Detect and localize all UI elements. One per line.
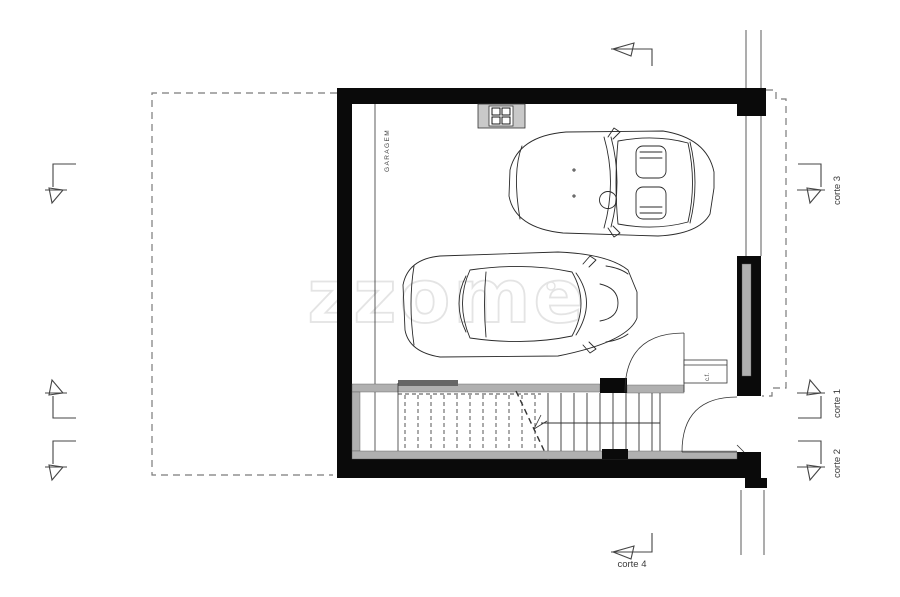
stair-mid-landing-line bbox=[541, 393, 660, 453]
divider-band-left bbox=[352, 384, 600, 392]
car-convertible-steering-wheel bbox=[600, 192, 617, 209]
section-label-corte-3: corte 3 bbox=[832, 176, 843, 205]
car-convertible-mirror-top bbox=[608, 128, 620, 139]
section-arrow-corte-3 bbox=[797, 164, 825, 203]
section-marker-corte-4: corte 4 bbox=[611, 533, 652, 570]
wall-bottom-step bbox=[745, 478, 767, 488]
room-label-garagem: GARAGEM bbox=[384, 129, 391, 172]
closet-label: c.f. bbox=[705, 373, 711, 381]
vent-flue-1 bbox=[492, 108, 500, 115]
wall-right-door-head bbox=[737, 382, 761, 396]
floor-plan-canvas: zzome GARAGEM bbox=[0, 0, 900, 597]
wall-right-pier bbox=[737, 88, 766, 116]
stair-cut-line bbox=[516, 391, 549, 461]
stair-treads-dashed bbox=[405, 395, 535, 452]
vent-detail bbox=[478, 104, 525, 128]
garage-door-opening bbox=[746, 116, 761, 256]
car-convertible-hood-dot-2 bbox=[573, 195, 575, 197]
interior-door: c.f. bbox=[625, 333, 727, 392]
section-marker-corte-3: corte 3 bbox=[797, 164, 843, 205]
car-convertible-windshield-outer bbox=[604, 137, 611, 228]
divider-wall bbox=[352, 378, 684, 451]
section-label-corte-4: corte 4 bbox=[617, 559, 646, 570]
car-coupe-headlights bbox=[606, 266, 628, 342]
divider-column bbox=[600, 378, 627, 393]
car-convertible-mirror-bottom bbox=[608, 226, 620, 237]
car-convertible-body bbox=[509, 131, 714, 236]
section-arrow-top bbox=[611, 43, 652, 66]
wall-continuation-south bbox=[741, 490, 764, 555]
section-arrow-corte-4 bbox=[611, 533, 652, 559]
section-marker-corte-2: corte 2 bbox=[797, 441, 843, 480]
divider-band-right bbox=[627, 385, 684, 393]
wall-continuation-north bbox=[746, 30, 761, 88]
entry-door bbox=[682, 396, 761, 452]
interior-door-swing-arc bbox=[625, 333, 684, 392]
car-convertible-seat-left-lines bbox=[640, 152, 662, 158]
car-convertible bbox=[509, 128, 714, 237]
vent-flue-3 bbox=[492, 117, 500, 124]
bottom-band-break bbox=[602, 449, 628, 459]
section-arrow-left-middle bbox=[45, 380, 76, 418]
section-arrow-corte-2 bbox=[797, 441, 825, 480]
wall-right-insulation bbox=[742, 264, 751, 376]
entry-door-swing-arc bbox=[682, 397, 737, 452]
section-arrow-left-bottom bbox=[45, 441, 76, 480]
stair-handrail bbox=[398, 380, 458, 386]
wall-top bbox=[337, 88, 766, 104]
section-arrow-left-top bbox=[45, 164, 76, 203]
section-marker-corte-1: corte 1 bbox=[797, 380, 843, 418]
left-wall-finish bbox=[352, 392, 360, 451]
car-convertible-seat-right bbox=[636, 187, 666, 219]
stair-direction-arrow bbox=[534, 415, 547, 429]
car-coupe-hood-detail bbox=[600, 284, 618, 321]
car-convertible-hood-dot-1 bbox=[573, 169, 575, 171]
bottom-band bbox=[352, 451, 737, 459]
wall-right-door-sill bbox=[737, 452, 761, 478]
wall-left bbox=[337, 88, 352, 478]
section-label-corte-1: corte 1 bbox=[832, 389, 843, 418]
car-convertible-front-bumper bbox=[516, 146, 522, 219]
section-arrow-corte-1 bbox=[797, 380, 825, 418]
vent-flue-2 bbox=[502, 108, 510, 115]
section-label-corte-2: corte 2 bbox=[832, 449, 843, 478]
lot-boundary-right bbox=[762, 90, 786, 396]
car-convertible-cockpit bbox=[616, 138, 693, 227]
wall-bottom bbox=[337, 458, 761, 478]
vent-flue-4 bbox=[502, 117, 510, 124]
entry-door-opening bbox=[737, 396, 761, 452]
car-convertible-seat-right-lines bbox=[640, 207, 662, 213]
floor-plan-page: zzome GARAGEM bbox=[0, 0, 900, 597]
car-coupe-mirror-bottom bbox=[583, 342, 596, 353]
car-convertible-seat-left bbox=[636, 146, 666, 178]
